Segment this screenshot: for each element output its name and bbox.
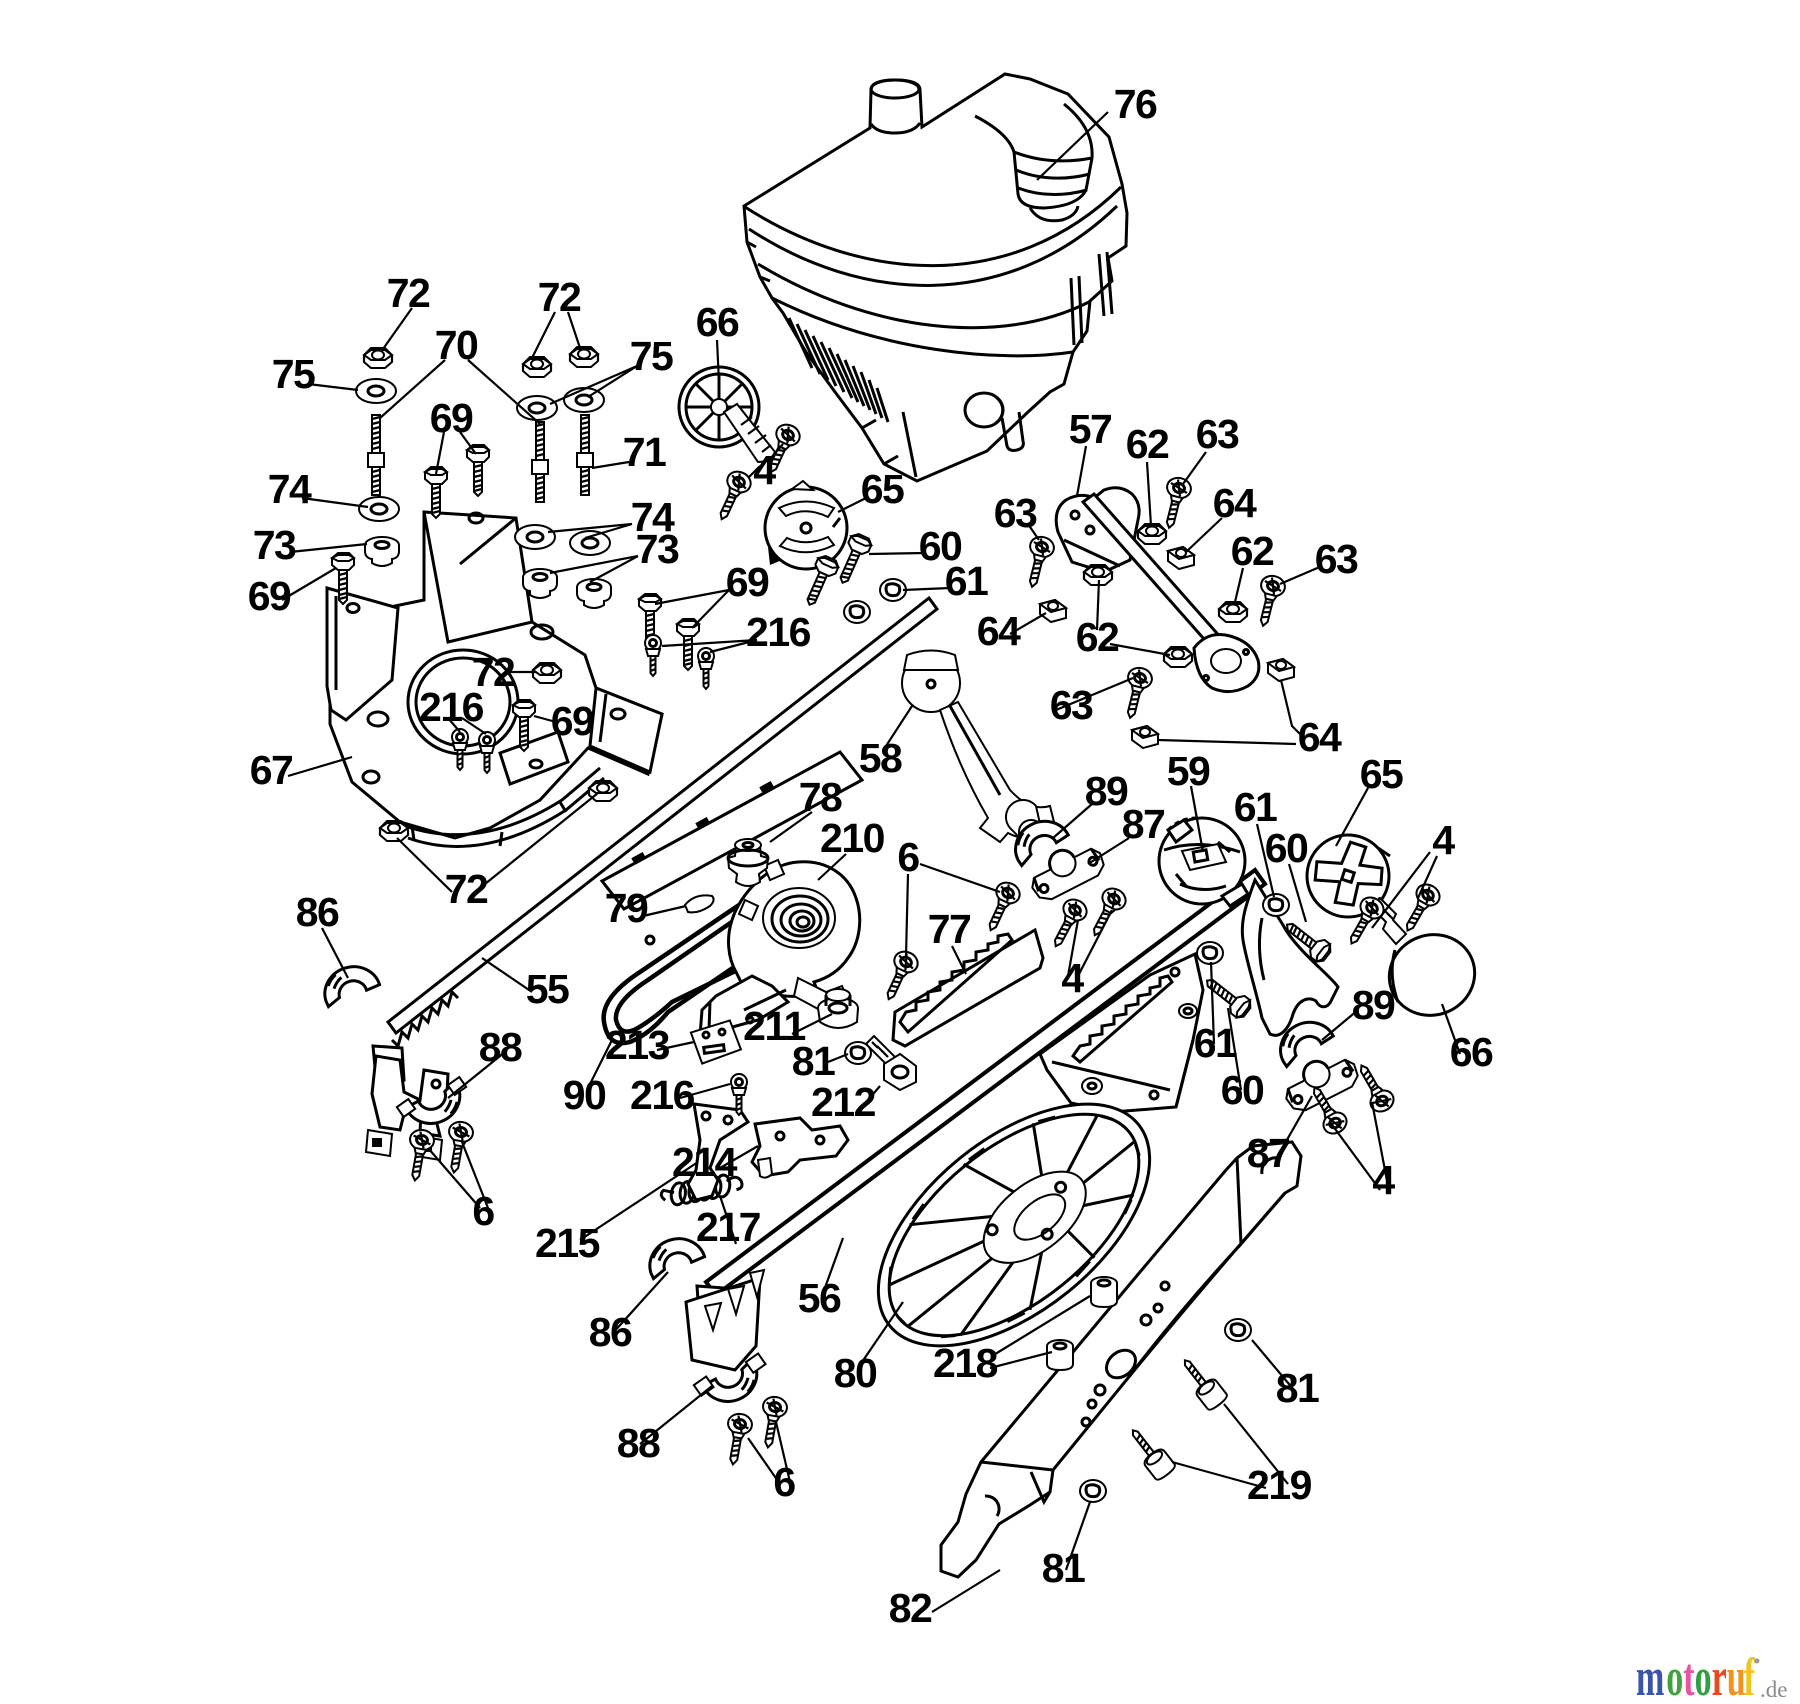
svg-text:u: u xyxy=(1727,1647,1746,1704)
svg-text:57: 57 xyxy=(1069,406,1112,452)
svg-text:66: 66 xyxy=(696,299,739,345)
svg-text:65: 65 xyxy=(861,466,904,512)
svg-text:72: 72 xyxy=(538,274,581,320)
svg-text:214: 214 xyxy=(672,1139,738,1185)
svg-text:6: 6 xyxy=(897,834,919,880)
svg-text:64: 64 xyxy=(977,608,1021,654)
svg-text:69: 69 xyxy=(551,698,594,744)
svg-text:213: 213 xyxy=(605,1022,670,1068)
svg-text:74: 74 xyxy=(268,466,312,512)
svg-text:81: 81 xyxy=(1276,1365,1319,1411)
svg-text:61: 61 xyxy=(1194,1020,1237,1066)
svg-text:60: 60 xyxy=(1221,1067,1264,1113)
svg-text:86: 86 xyxy=(589,1309,632,1355)
svg-text:63: 63 xyxy=(1315,536,1358,582)
svg-text:218: 218 xyxy=(933,1340,998,1386)
svg-text:62: 62 xyxy=(1126,421,1169,467)
svg-text:64: 64 xyxy=(1213,480,1257,526)
svg-text:m: m xyxy=(1636,1647,1664,1704)
svg-text:56: 56 xyxy=(798,1275,841,1321)
svg-text:f: f xyxy=(1744,1647,1756,1704)
svg-text:60: 60 xyxy=(1265,825,1308,871)
svg-text:88: 88 xyxy=(617,1420,660,1466)
svg-text:4: 4 xyxy=(1061,955,1084,1001)
svg-text:6: 6 xyxy=(472,1188,494,1234)
svg-text:81: 81 xyxy=(792,1038,835,1084)
svg-text:79: 79 xyxy=(605,885,648,931)
svg-text:212: 212 xyxy=(811,1079,876,1125)
svg-text:t: t xyxy=(1683,1647,1694,1704)
svg-text:r: r xyxy=(1712,1647,1727,1704)
svg-text:217: 217 xyxy=(696,1204,760,1250)
svg-text:63: 63 xyxy=(1196,411,1239,457)
svg-text:4: 4 xyxy=(1432,817,1455,863)
svg-text:210: 210 xyxy=(820,815,885,861)
svg-text:4: 4 xyxy=(1372,1157,1395,1203)
svg-text:70: 70 xyxy=(435,322,478,368)
svg-text:73: 73 xyxy=(636,526,679,572)
svg-text:87: 87 xyxy=(1247,1130,1290,1176)
svg-text:4: 4 xyxy=(753,447,776,493)
svg-text:67: 67 xyxy=(250,747,293,793)
svg-text:66: 66 xyxy=(1450,1029,1493,1075)
svg-text:o: o xyxy=(1695,1647,1712,1704)
svg-text:75: 75 xyxy=(630,333,673,379)
svg-text:76: 76 xyxy=(1114,81,1157,127)
svg-text:81: 81 xyxy=(1042,1545,1085,1591)
svg-text:58: 58 xyxy=(859,735,902,781)
svg-text:77: 77 xyxy=(928,906,971,952)
svg-text:62: 62 xyxy=(1076,614,1119,660)
svg-text:215: 215 xyxy=(535,1220,600,1266)
svg-text:63: 63 xyxy=(994,490,1037,536)
svg-text:216: 216 xyxy=(746,609,811,655)
svg-text:80: 80 xyxy=(834,1350,877,1396)
svg-text:6: 6 xyxy=(773,1459,795,1505)
svg-text:88: 88 xyxy=(479,1024,522,1070)
svg-text:219: 219 xyxy=(1247,1462,1312,1508)
svg-text:63: 63 xyxy=(1050,682,1093,728)
svg-text:216: 216 xyxy=(419,684,484,730)
svg-text:75: 75 xyxy=(272,351,315,397)
svg-text:o: o xyxy=(1666,1647,1683,1704)
svg-text:65: 65 xyxy=(1360,751,1403,797)
svg-text:69: 69 xyxy=(248,573,291,619)
svg-text:59: 59 xyxy=(1167,748,1210,794)
svg-text:69: 69 xyxy=(726,559,769,605)
svg-text:87: 87 xyxy=(1122,801,1165,847)
svg-text:72: 72 xyxy=(387,270,430,316)
svg-text:78: 78 xyxy=(799,774,842,820)
svg-text:69: 69 xyxy=(430,395,473,441)
svg-text:90: 90 xyxy=(563,1072,606,1118)
svg-text:82: 82 xyxy=(889,1585,932,1631)
svg-text:62: 62 xyxy=(1231,528,1274,574)
svg-text:61: 61 xyxy=(1234,784,1277,830)
svg-text:73: 73 xyxy=(253,522,296,568)
svg-text:89: 89 xyxy=(1352,982,1395,1028)
svg-text:55: 55 xyxy=(526,966,569,1012)
svg-text:.de: .de xyxy=(1760,1677,1787,1702)
svg-text:216: 216 xyxy=(630,1072,695,1118)
svg-text:72: 72 xyxy=(445,866,488,912)
svg-text:71: 71 xyxy=(623,429,666,475)
svg-text:61: 61 xyxy=(945,558,988,604)
svg-text:86: 86 xyxy=(296,889,339,935)
svg-text:64: 64 xyxy=(1298,714,1342,760)
